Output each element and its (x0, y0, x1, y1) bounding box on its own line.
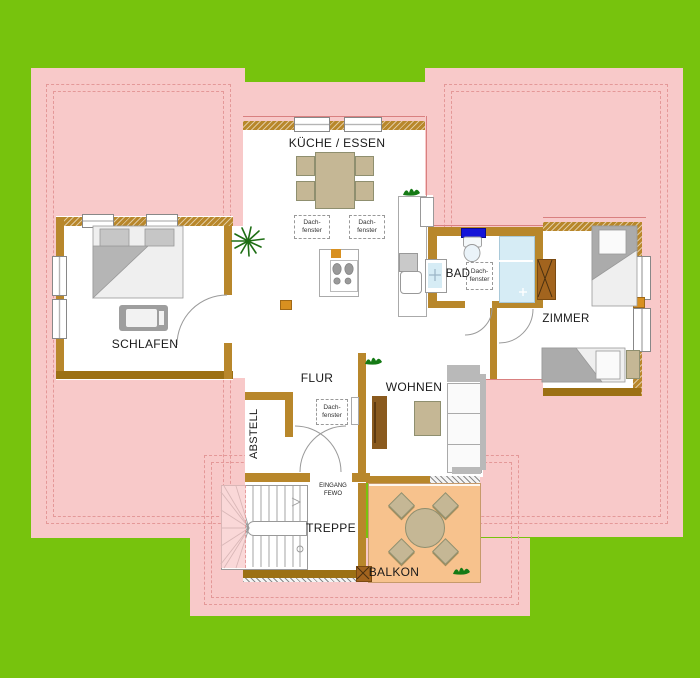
dining-chair (296, 181, 315, 201)
window-zimmer-1 (633, 256, 651, 300)
kitchen-island-sink (331, 249, 341, 258)
window-kueche-1 (294, 117, 330, 132)
tv-screen (374, 402, 376, 443)
sofa-cushion (447, 413, 482, 445)
window-zimmer-2 (633, 308, 651, 352)
entry-label-line2: FEWO (303, 491, 363, 497)
kitchen-sink-drainer (399, 253, 418, 272)
dresser-knob (159, 311, 164, 325)
cooktop-panel (330, 260, 358, 292)
room-label-kueche: KÜCHE / ESSEN (277, 136, 397, 150)
floor-schlafen (56, 216, 233, 380)
kitchen-sink-basin (400, 271, 422, 294)
room-label-zimmer: ZIMMER (526, 313, 606, 325)
dachfenster-label: Dach- (358, 219, 375, 227)
eave-line-zimmer (543, 217, 646, 218)
eave-line-vestibuel (483, 379, 543, 380)
dining-chair (296, 156, 315, 176)
wall-flur-wohnen-divider (358, 353, 366, 477)
wall-zimmer-top (543, 222, 641, 231)
wall-kueche-top (243, 121, 425, 130)
room-label-balkon: BALKON (354, 565, 434, 579)
wall-zimmer-right-upper (633, 222, 642, 256)
entry-label-line1: EINGANG (303, 483, 363, 489)
wall-treppe-bottom-hatch (243, 578, 362, 582)
floor-plan: Dach- fenster Dach- fenster Dach- fenste… (0, 0, 700, 678)
room-label-flur: FLUR (277, 371, 357, 385)
dachfenster-label: fenster (357, 227, 377, 235)
dining-table (315, 152, 355, 209)
balcony-door-band (430, 476, 480, 483)
roof-overlap-stairs (221, 485, 246, 568)
dachfenster-box-kueche-2: Dach- fenster (349, 215, 385, 239)
room-label-schlafen: SCHLAFEN (95, 337, 195, 351)
dresser-top (126, 309, 157, 327)
dachfenster-label: Dach- (323, 404, 340, 412)
window-schlafen-top-1 (82, 214, 114, 228)
wall-entry-left (245, 473, 310, 482)
room-label-wohnen: WOHNEN (374, 380, 454, 394)
eave-line-bad (426, 225, 543, 226)
room-label-abstell: ABSTELL (248, 406, 264, 462)
wall-zimmer-bottom (543, 388, 641, 396)
wall-hall-divider (490, 308, 497, 379)
shower-divider (499, 260, 533, 262)
dining-chair (355, 156, 374, 176)
window-schlafen-top-2 (146, 214, 178, 228)
nightstand (626, 350, 640, 379)
window-schlafen-left-2 (52, 299, 67, 339)
chimney (537, 259, 556, 300)
kitchen-appliance (420, 197, 434, 227)
dachfenster-label: fenster (302, 227, 322, 235)
wall-bad-left-upper (428, 236, 437, 260)
wall-bad-bottom-left (428, 301, 465, 308)
sofa-base (452, 467, 481, 474)
dachfenster-label: Dach- (303, 219, 320, 227)
wall-schlafen-right-lower (224, 343, 232, 379)
room-label-treppe: TREPPE (291, 521, 371, 535)
dachfenster-label: fenster (322, 412, 342, 420)
eave-line-kueche (243, 116, 425, 117)
wall-schlafen-left (56, 217, 64, 379)
dining-chair (355, 181, 374, 201)
room-label-bad: BAD (438, 268, 478, 280)
window-schlafen-left-1 (52, 256, 67, 296)
wall-abstell-top (245, 392, 293, 400)
shower (499, 236, 535, 303)
window-bad-blue (461, 228, 486, 238)
balcony-table (405, 508, 445, 548)
sofa-backrest (480, 374, 486, 470)
coffee-table (414, 401, 441, 436)
flue-marker (280, 300, 292, 310)
flur-shelf (351, 397, 359, 425)
wall-schlafen-right-upper (224, 226, 232, 295)
wall-wohnen-balkon (366, 476, 430, 483)
dachfenster-box-kueche-1: Dach- fenster (294, 215, 330, 239)
wall-treppe-bottom (243, 570, 362, 578)
dachfenster-box-flur: Dach- fenster (316, 399, 348, 425)
wall-schlafen-bottom (56, 371, 233, 379)
wall-abstell-right (285, 400, 293, 437)
flue-marker (633, 297, 645, 308)
window-kueche-2 (344, 117, 382, 132)
